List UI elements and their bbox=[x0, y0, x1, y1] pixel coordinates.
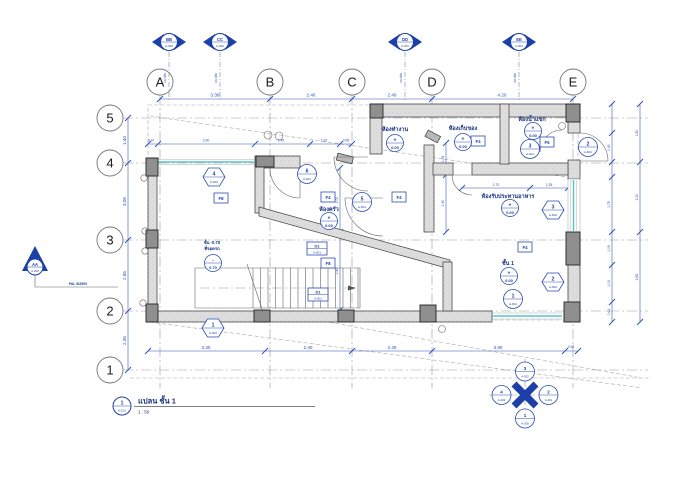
room-label: ห้องเก็บของ bbox=[449, 124, 478, 132]
level-value: 0.70 bbox=[209, 265, 218, 270]
elevation-note: PAL W250X bbox=[69, 282, 88, 286]
floor-tag-label: F4 bbox=[325, 195, 331, 200]
door-swing-kitchen bbox=[270, 168, 300, 198]
door-num: 5 bbox=[361, 196, 364, 202]
dim-text: 2.35 bbox=[122, 336, 127, 345]
section-note: แนวตัด bbox=[163, 73, 167, 83]
section-note: แนวตัด bbox=[513, 73, 517, 83]
level-sign: + bbox=[328, 215, 331, 221]
grid-label: 1 bbox=[106, 363, 113, 378]
window-tag: 4 A-602 bbox=[203, 168, 225, 186]
window-sheet: A-602 bbox=[549, 285, 557, 289]
level-sign: + bbox=[508, 270, 511, 276]
floor-tag-label: F4 bbox=[396, 195, 402, 200]
dim-text: 2.40 bbox=[304, 345, 313, 350]
section-sheet: A-300 bbox=[515, 44, 523, 48]
door-tag: 5 A-601 bbox=[353, 193, 372, 212]
door-num: 1 bbox=[512, 293, 515, 299]
dim-text: 0.38 bbox=[568, 345, 575, 349]
room-label: ชั้น -0.70 bbox=[204, 238, 221, 245]
level-value: 0.00 bbox=[505, 278, 514, 283]
fixture-circle bbox=[439, 326, 446, 333]
compass-sheet: A-200 bbox=[521, 422, 529, 426]
grid-label: 2 bbox=[106, 304, 113, 319]
door-sheet: A-601 bbox=[509, 302, 517, 306]
wall-mid-vertical bbox=[424, 145, 434, 232]
dim-text: 2.85 bbox=[635, 274, 639, 281]
dim-text: 3.90 bbox=[494, 345, 503, 350]
window-num: 2 bbox=[552, 277, 555, 283]
floor-plan-drawing: 3.30 2.40 2.40 4.20 0.10 2.90 0.45 1.02 … bbox=[0, 0, 700, 494]
section-note: แนวตัด bbox=[399, 73, 403, 83]
column bbox=[370, 104, 383, 118]
column bbox=[146, 158, 158, 176]
compass-sheet: A-203 bbox=[498, 398, 506, 402]
grid-label: B bbox=[266, 75, 275, 90]
dim-text: 1.15 bbox=[607, 280, 611, 287]
level-sign: + bbox=[532, 125, 535, 131]
level-value: 0.00 bbox=[459, 144, 468, 149]
elevation-sheet: A-200 bbox=[31, 269, 39, 273]
dim-text: 2.90 bbox=[203, 139, 210, 143]
floor-tag-label: F4 bbox=[475, 139, 481, 144]
section-label: CC bbox=[217, 37, 223, 42]
grid-label: 5 bbox=[106, 111, 113, 126]
window-tag: 3 A-602 bbox=[542, 201, 564, 219]
column bbox=[564, 302, 580, 322]
window-sheet: A-602 bbox=[210, 180, 218, 184]
dim-text: 2.40 bbox=[388, 345, 397, 350]
door-tag: 3 A-601 bbox=[521, 140, 540, 159]
wall-divider-2 bbox=[472, 163, 568, 175]
floor-plan-canvas: 3.30 2.40 2.40 4.20 0.10 2.90 0.45 1.02 … bbox=[0, 0, 700, 494]
wall-bottom bbox=[148, 311, 492, 322]
grid-label: C bbox=[347, 75, 356, 90]
grid-label: E bbox=[569, 75, 578, 90]
view-number: 1 bbox=[121, 401, 124, 407]
wall-right-mid bbox=[568, 160, 580, 179]
column bbox=[420, 305, 436, 322]
staircase bbox=[195, 264, 360, 312]
detail-sheet: A-601 bbox=[313, 251, 321, 255]
dim-text: 0.55 bbox=[343, 139, 350, 143]
window-num: 1 bbox=[212, 323, 215, 329]
detail-tags: D1 A-601 D1 A-601 bbox=[307, 242, 328, 301]
dim-text: 2.85 bbox=[122, 271, 127, 280]
section-sheet: A-300 bbox=[216, 44, 224, 48]
fixture-circle bbox=[264, 131, 272, 139]
dim-text: 1.02 bbox=[321, 139, 328, 143]
door-swing-dining bbox=[452, 175, 472, 195]
section-sheet: A-300 bbox=[165, 44, 173, 48]
elevation-marker-left: AA A-200 PAL W250X bbox=[22, 246, 118, 287]
column bbox=[338, 310, 354, 322]
dim-text: 0.10 bbox=[148, 139, 155, 143]
level-sign: + bbox=[394, 137, 397, 143]
wall-diagonal bbox=[259, 207, 450, 269]
floor-tag-label: F8 bbox=[325, 261, 331, 266]
room-label: ห้องรับประทานอาหาร bbox=[482, 192, 535, 200]
wall-bath-west bbox=[500, 104, 509, 164]
level-value: 0.00 bbox=[506, 210, 515, 215]
level-value: 0.00 bbox=[529, 133, 538, 138]
section-label: BB bbox=[166, 37, 172, 42]
dim-text: 4.20 bbox=[498, 93, 507, 98]
column bbox=[146, 304, 158, 322]
fixture-circle bbox=[141, 175, 147, 181]
view-title-block: 1 A-101 แปลน ชั้น 1 1 : 50 bbox=[113, 395, 315, 416]
door-sheet: A-601 bbox=[526, 152, 534, 156]
wall-divider-1 bbox=[433, 163, 453, 175]
compass-sheet: A-201 bbox=[545, 398, 553, 402]
fixture-circle bbox=[559, 123, 566, 130]
window-tag: 2 A-602 bbox=[542, 273, 564, 291]
dim-text: 1.90 bbox=[441, 200, 445, 207]
grid-label: 4 bbox=[106, 156, 113, 171]
window-sheet: A-602 bbox=[209, 331, 217, 335]
column bbox=[566, 232, 580, 265]
door-tag: 6 A-601 bbox=[298, 165, 317, 184]
grid-label: D bbox=[427, 75, 436, 90]
column bbox=[566, 104, 580, 122]
detail-label: D1 bbox=[315, 290, 321, 295]
level-value: 0.00 bbox=[325, 223, 334, 228]
level-sign: + bbox=[509, 202, 512, 208]
section-label: EE bbox=[516, 37, 522, 42]
dim-text: 2.00 bbox=[335, 197, 339, 204]
grid-label: 3 bbox=[106, 233, 113, 248]
dim-text: 1.40 bbox=[122, 136, 127, 145]
dim-text: 3.30 bbox=[211, 93, 220, 98]
detail-sheet: A-601 bbox=[314, 297, 322, 301]
dim-text: 0.63 bbox=[607, 309, 611, 316]
door-num: 3 bbox=[529, 143, 532, 149]
dim-text: 0.90 bbox=[607, 144, 611, 151]
door-tag: 2 A-601 bbox=[579, 138, 598, 157]
floor-tag-label: F8 bbox=[218, 196, 224, 201]
dim-text: 2.20 bbox=[635, 194, 639, 201]
view-title: แปลน ชั้น 1 bbox=[138, 395, 176, 406]
section-marker: EE A-300 แนวตัด bbox=[502, 34, 536, 103]
room-label: ชั้น 1 bbox=[502, 258, 514, 267]
column bbox=[256, 156, 274, 167]
dim-text: 1.80 bbox=[635, 130, 639, 137]
wall-below-diagonal bbox=[443, 262, 452, 311]
dim-text: 3.05 bbox=[122, 197, 127, 206]
compass-sheet: A-202 bbox=[521, 375, 529, 379]
room-label: ห้องครัว bbox=[319, 205, 339, 213]
door-leaf-angled bbox=[336, 153, 353, 164]
section-label: DD bbox=[402, 37, 408, 42]
floor-tag-label: F5 bbox=[544, 140, 550, 145]
window-sheet: A-602 bbox=[549, 213, 557, 217]
door-num: 6 bbox=[306, 168, 309, 174]
room-label: ที่จอดรถ bbox=[204, 245, 220, 251]
window-num: 4 bbox=[213, 172, 216, 178]
view-sheet: A-101 bbox=[118, 409, 126, 413]
floor-tag-label: F4 bbox=[522, 245, 528, 250]
fixture-circle bbox=[142, 248, 148, 254]
section-note: แนวตัด bbox=[214, 73, 218, 83]
dim-text: 1.05 bbox=[607, 245, 611, 252]
dim-text: 1.06 bbox=[441, 156, 445, 163]
dim-text: 3.30 bbox=[202, 345, 211, 350]
wall-kitchen-west bbox=[255, 166, 264, 213]
level-value: 0.00 bbox=[391, 145, 400, 150]
dim-text: 1.28 bbox=[546, 183, 553, 187]
section-sheet: A-300 bbox=[401, 44, 409, 48]
section-marker: CC A-300 แนวตัด bbox=[203, 34, 237, 102]
column bbox=[254, 310, 270, 322]
elevation-label: AA bbox=[32, 262, 38, 267]
fixture-circle bbox=[140, 300, 146, 306]
view-scale: 1 : 50 bbox=[138, 410, 150, 415]
dim-text: 2.40 bbox=[307, 93, 316, 98]
detail-label: D1 bbox=[314, 244, 320, 249]
level-sign: + bbox=[462, 136, 465, 142]
dim-text: 1.75 bbox=[607, 201, 611, 208]
door-tag: 1 A-601 bbox=[504, 290, 523, 309]
door-sheet: A-601 bbox=[303, 177, 311, 181]
door-sheet: A-601 bbox=[584, 150, 592, 154]
door-sheet: A-601 bbox=[358, 205, 366, 209]
door-leaf-angled bbox=[425, 130, 441, 143]
dim-text: 2.40 bbox=[388, 93, 397, 98]
roof-diagonal-bottom-2 bbox=[305, 318, 642, 378]
door-num: 2 bbox=[587, 141, 590, 147]
room-label: ห้องทำงาน bbox=[382, 125, 408, 133]
window-num: 3 bbox=[552, 205, 555, 211]
wall-top bbox=[378, 104, 580, 117]
dim-text: 1.70 bbox=[493, 183, 500, 187]
